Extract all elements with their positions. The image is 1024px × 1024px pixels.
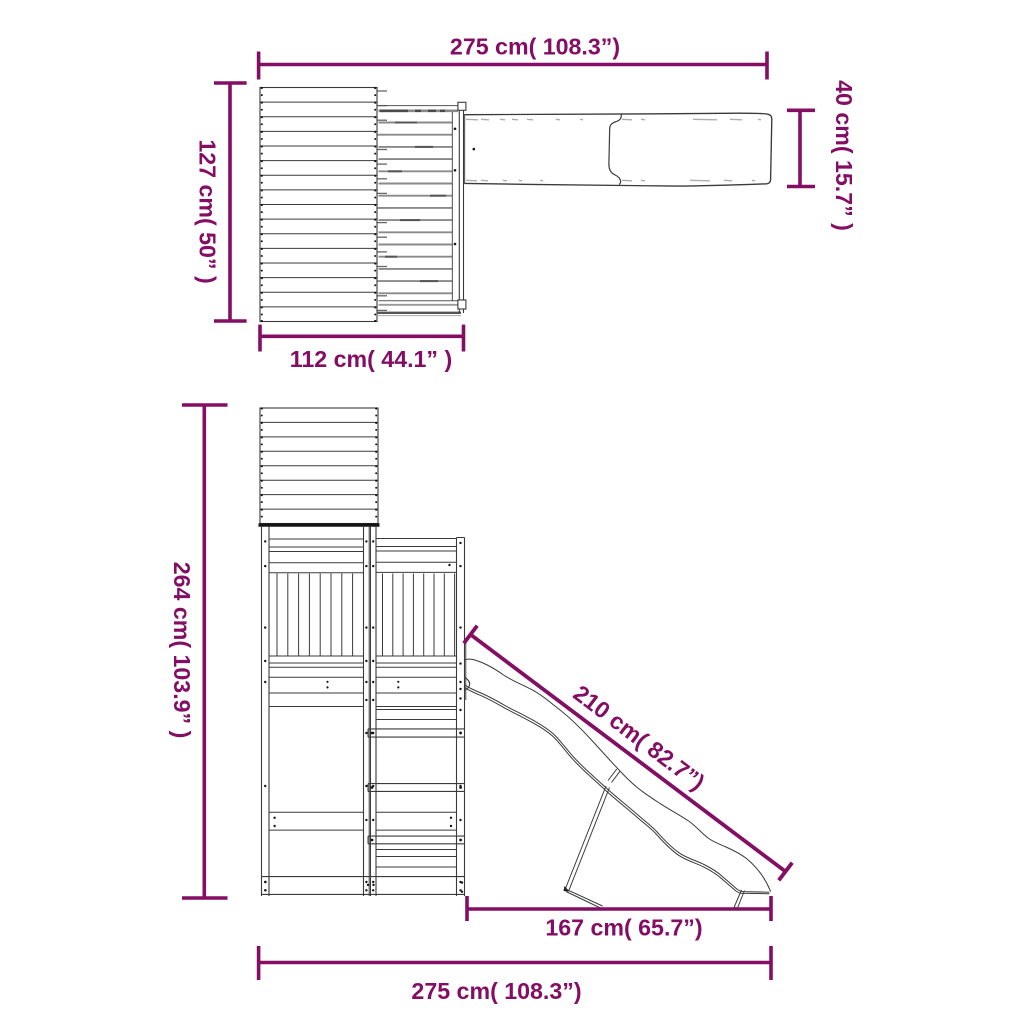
svg-text:167 cm( 65.7”): 167 cm( 65.7”) <box>545 915 702 941</box>
svg-text:275 cm( 108.3”): 275 cm( 108.3”) <box>450 34 620 60</box>
svg-text:264 cm( 103.9” ): 264 cm( 103.9” ) <box>169 562 195 739</box>
svg-text:127 cm( 50” ): 127 cm( 50” ) <box>195 139 221 283</box>
svg-text:40 cm( 15.7” ): 40 cm( 15.7” ) <box>831 80 857 231</box>
svg-text:112 cm( 44.1” ): 112 cm( 44.1” ) <box>290 346 452 372</box>
svg-text:275 cm( 108.3”): 275 cm( 108.3”) <box>411 978 581 1004</box>
